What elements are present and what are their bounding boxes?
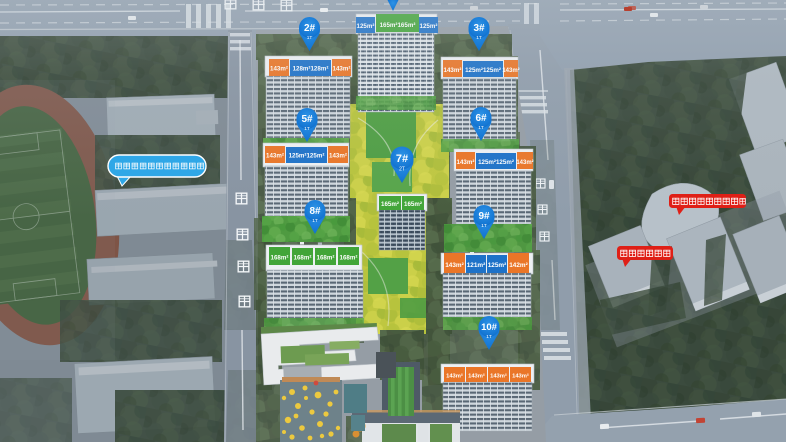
svg-text:168m²: 168m² [340,255,358,262]
svg-text:2T: 2T [399,167,405,173]
svg-text:10#: 10# [481,322,498,333]
svg-text:1T: 1T [478,125,484,131]
svg-text:1T: 1T [312,218,318,224]
svg-text:142m²: 142m² [509,262,527,269]
svg-text:1T: 1T [304,126,310,132]
svg-text:125m²: 125m² [488,262,506,269]
svg-text:2#: 2# [304,23,316,34]
svg-text:9#: 9# [478,211,490,222]
svg-text:8#: 8# [309,206,321,217]
svg-text:6#: 6# [475,113,487,124]
svg-text:5#: 5# [301,114,313,125]
svg-text:143m²: 143m² [445,262,463,269]
svg-text:1T: 1T [476,35,482,41]
svg-text:168m²: 168m² [317,255,335,262]
svg-text:168m²: 168m² [271,255,289,262]
svg-text:3#: 3# [473,23,485,34]
svg-text:143m²: 143m² [490,373,507,380]
svg-text:143m²: 143m² [512,373,529,380]
svg-text:1T: 1T [486,334,492,340]
svg-text:168m²: 168m² [294,255,312,262]
svg-text:143m²: 143m² [468,373,485,380]
svg-text:1T: 1T [481,223,487,229]
svg-text:143m²: 143m² [446,373,463,380]
svg-text:1T: 1T [307,35,313,41]
svg-text:121m²: 121m² [467,262,485,269]
svg-text:7#: 7# [396,153,408,165]
